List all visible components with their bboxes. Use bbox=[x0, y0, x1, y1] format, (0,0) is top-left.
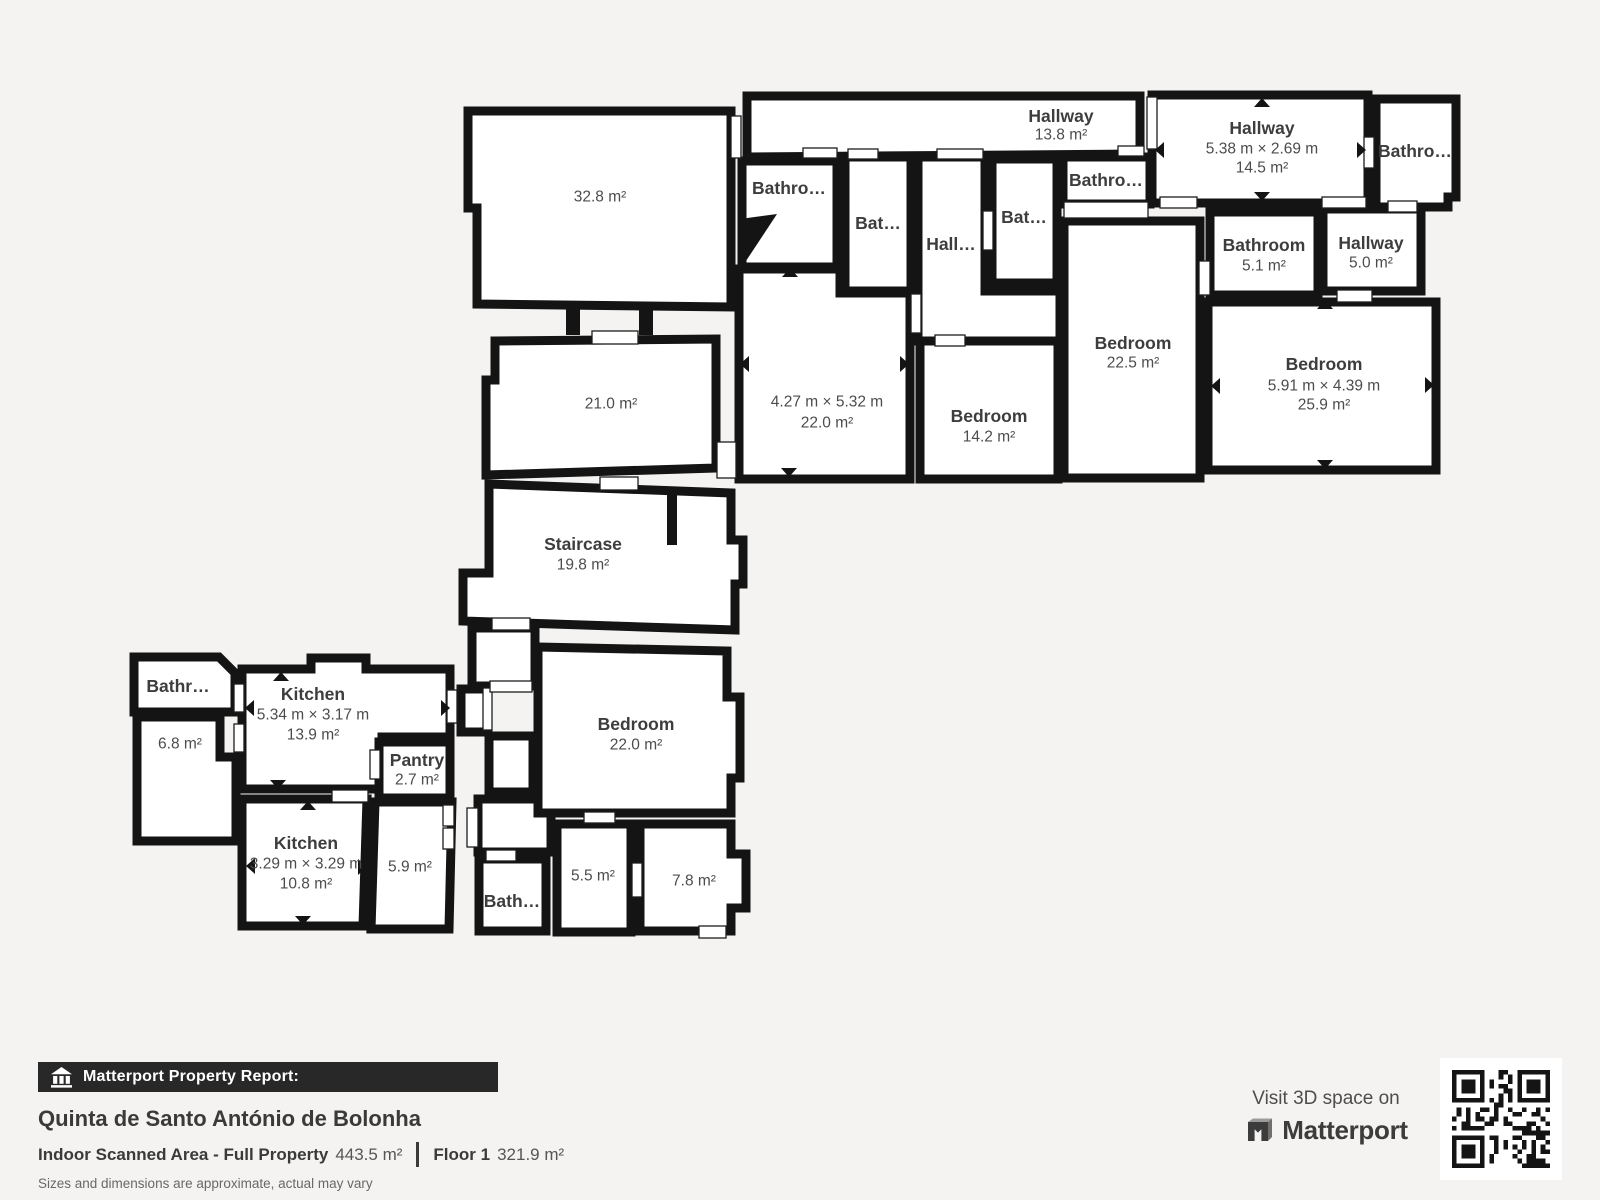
label-hallway-5-0: Hallway bbox=[1338, 233, 1403, 253]
disclaimer-text: Sizes and dimensions are approximate, ac… bbox=[38, 1176, 564, 1191]
property-title: Quinta de Santo António de Bolonha bbox=[38, 1106, 564, 1132]
label-bedroom-25-9: 25.9 m² bbox=[1298, 397, 1351, 414]
label-bathroom-top-3: Bat… bbox=[1001, 207, 1047, 227]
label-bedroom-22-0: 22.0 m² bbox=[610, 737, 663, 754]
label-room-5-9: 5.9 m² bbox=[388, 859, 432, 876]
label-bathroom-5-1: 5.1 m² bbox=[1242, 258, 1286, 275]
door-window-opening bbox=[234, 684, 244, 712]
label-bedroom-25-9: 5.91 m × 4.39 m bbox=[1268, 378, 1380, 395]
door-window-opening bbox=[699, 926, 726, 938]
door-window-opening bbox=[1064, 202, 1148, 218]
label-bathroom-top-2: Bat… bbox=[855, 213, 901, 233]
door-window-opening bbox=[332, 790, 368, 802]
door-window-opening bbox=[584, 812, 615, 823]
door-window-opening bbox=[443, 805, 454, 826]
visit-text: Visit 3D space on bbox=[1222, 1088, 1430, 1110]
label-bathroom-top-4: Bathro… bbox=[1069, 170, 1143, 190]
label-kitchen-10-8: 3.29 m × 3.29 m bbox=[250, 856, 362, 873]
door-window-opening bbox=[632, 863, 642, 897]
door-window-opening bbox=[935, 335, 965, 346]
label-bedroom-25-9: Bedroom bbox=[1286, 354, 1363, 374]
building-icon bbox=[50, 1067, 73, 1088]
label-hallway-13-8: Hallway bbox=[1028, 106, 1093, 126]
label-room-5-5: 5.5 m² bbox=[571, 868, 615, 885]
label-kitchen-13-9: Kitchen bbox=[281, 684, 345, 704]
label-hallway-14-5: 14.5 m² bbox=[1236, 160, 1289, 177]
door-window-opening bbox=[731, 116, 741, 158]
label-bathroom-bottom: Bath… bbox=[484, 891, 540, 911]
stats-divider bbox=[416, 1142, 419, 1167]
label-kitchen-10-8: Kitchen bbox=[274, 833, 338, 853]
floor-value: 321.9 m² bbox=[497, 1145, 564, 1165]
door-window-opening bbox=[370, 750, 380, 779]
report-footer: Matterport Property Report: Quinta de Sa… bbox=[38, 1062, 564, 1191]
room-room-22-0-top bbox=[739, 269, 910, 479]
floor-plan: 32.8 m²21.0 m²Staircase19.8 m²Hallway13.… bbox=[0, 0, 1600, 1200]
door-window-opening bbox=[234, 724, 244, 752]
report-bar: Matterport Property Report: bbox=[38, 1062, 498, 1092]
door-window-opening bbox=[1118, 146, 1144, 156]
door-window-opening bbox=[592, 331, 638, 344]
label-room-6-8: 6.8 m² bbox=[158, 736, 202, 753]
door-window-opening bbox=[983, 211, 993, 250]
label-kitchen-10-8: 10.8 m² bbox=[280, 876, 333, 893]
label-hallway-5-0: 5.0 m² bbox=[1349, 255, 1393, 272]
door-window-opening bbox=[483, 688, 492, 730]
door-window-opening bbox=[600, 477, 638, 490]
label-room-7-8: 7.8 m² bbox=[672, 873, 716, 890]
door-window-opening bbox=[1160, 197, 1197, 208]
wall-stub bbox=[667, 489, 677, 545]
wall-stub bbox=[639, 303, 653, 335]
label-staircase: 19.8 m² bbox=[557, 557, 610, 574]
brand-name: Matterport bbox=[1282, 1115, 1408, 1146]
label-bedroom-22-5: 22.5 m² bbox=[1107, 355, 1160, 372]
area-label: Indoor Scanned Area - Full Property bbox=[38, 1145, 328, 1165]
label-bedroom-14-2: Bedroom bbox=[951, 406, 1028, 426]
wall-stub bbox=[566, 303, 580, 335]
door-window-opening bbox=[1199, 261, 1210, 295]
floor-label: Floor 1 bbox=[433, 1145, 490, 1165]
label-bedroom-22-0: Bedroom bbox=[598, 714, 675, 734]
label-pantry: 2.7 m² bbox=[395, 772, 439, 789]
door-window-opening bbox=[937, 149, 983, 159]
label-bathroom-top-right: Bathro… bbox=[1378, 141, 1452, 161]
label-bathroom-5-1: Bathroom bbox=[1223, 235, 1306, 255]
label-bathroom-top-1: Bathro… bbox=[752, 178, 826, 198]
label-staircase: Staircase bbox=[544, 534, 622, 554]
label-room-32-8: 32.8 m² bbox=[574, 189, 627, 206]
room-room-32-8 bbox=[468, 111, 731, 307]
label-room-22-0-top: 4.27 m × 5.32 m bbox=[771, 394, 883, 411]
door-window-opening bbox=[1147, 97, 1157, 149]
matterport-floorplan-report: 32.8 m²21.0 m²Staircase19.8 m²Hallway13.… bbox=[0, 0, 1600, 1200]
room-connector-a bbox=[472, 628, 535, 686]
label-bedroom-22-5: Bedroom bbox=[1095, 333, 1172, 353]
room-connector-c bbox=[489, 736, 533, 792]
door-window-opening bbox=[492, 618, 530, 630]
door-window-opening bbox=[486, 850, 516, 861]
label-kitchen-13-9: 13.9 m² bbox=[287, 727, 340, 744]
door-window-opening bbox=[490, 681, 532, 692]
label-hallway-14-5: 5.38 m × 2.69 m bbox=[1206, 141, 1318, 158]
label-hallway-13-8: 13.8 m² bbox=[1035, 127, 1088, 144]
label-room-21-0: 21.0 m² bbox=[585, 396, 638, 413]
label-bathroom-left: Bathr… bbox=[146, 676, 209, 696]
label-kitchen-13-9: 5.34 m × 3.17 m bbox=[257, 707, 369, 724]
door-window-opening bbox=[717, 442, 736, 478]
door-window-opening bbox=[848, 149, 878, 159]
label-bedroom-14-2: 14.2 m² bbox=[963, 429, 1016, 446]
door-window-opening bbox=[1364, 137, 1374, 168]
door-window-opening bbox=[911, 294, 921, 333]
qr-code bbox=[1440, 1058, 1562, 1180]
door-window-opening bbox=[447, 690, 457, 723]
visit-3d-space-link[interactable]: Visit 3D space on Matterport bbox=[1222, 1088, 1430, 1146]
room-bathroom-top-1 bbox=[742, 161, 837, 267]
label-hallway-14-5: Hallway bbox=[1229, 118, 1294, 138]
door-window-opening bbox=[1337, 290, 1372, 302]
door-window-opening bbox=[467, 808, 478, 847]
door-window-opening bbox=[443, 828, 454, 849]
area-value: 443.5 m² bbox=[335, 1145, 402, 1165]
label-hall-corridor: Hall… bbox=[926, 234, 976, 254]
report-bar-label: Matterport Property Report: bbox=[83, 1068, 299, 1086]
matterport-logo-icon bbox=[1244, 1116, 1274, 1146]
label-pantry: Pantry bbox=[390, 750, 445, 770]
door-window-opening bbox=[1322, 197, 1366, 208]
area-stats: Indoor Scanned Area - Full Property 443.… bbox=[38, 1142, 564, 1167]
label-room-22-0-top: 22.0 m² bbox=[801, 415, 854, 432]
door-window-opening bbox=[1388, 201, 1417, 212]
door-window-opening bbox=[803, 148, 837, 158]
